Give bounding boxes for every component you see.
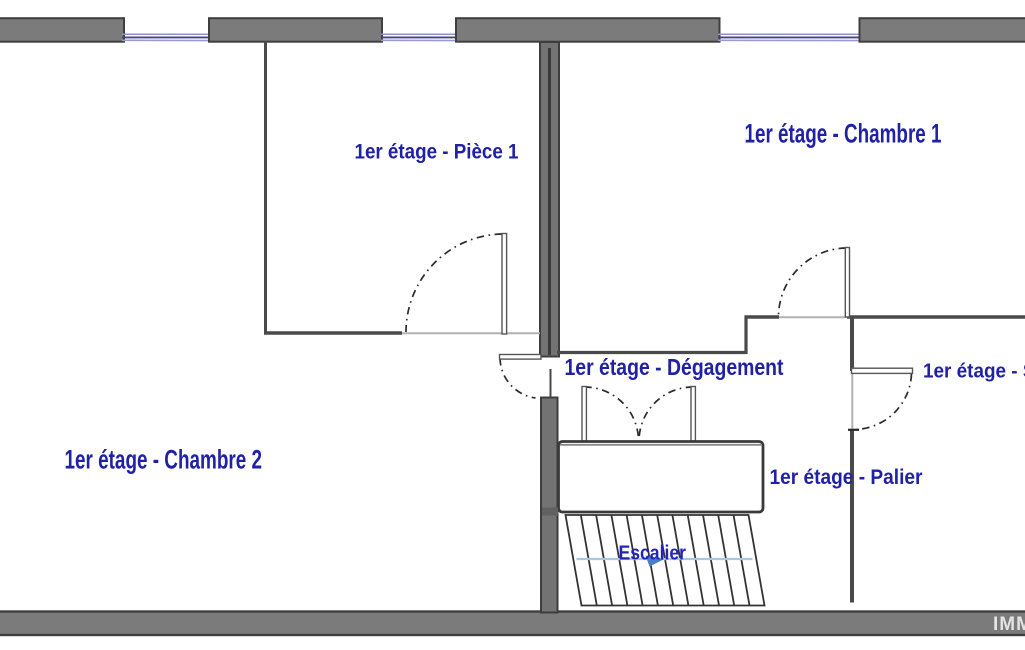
svg-text:1er étage - Chambre 1: 1er étage - Chambre 1 bbox=[745, 119, 942, 149]
svg-text:1er étage - Pièce 1: 1er étage - Pièce 1 bbox=[355, 140, 519, 164]
svg-text:1er étage - Sd: 1er étage - Sd bbox=[923, 361, 1025, 383]
svg-text:1er étage - Palier: 1er étage - Palier bbox=[770, 466, 923, 489]
svg-text:1er étage - Dégagement: 1er étage - Dégagement bbox=[565, 354, 784, 380]
svg-text:Escalier: Escalier bbox=[619, 543, 687, 565]
svg-text:IMMONOT: IMMONOT bbox=[993, 614, 1025, 635]
svg-text:1er étage - Chambre 2: 1er étage - Chambre 2 bbox=[65, 445, 263, 475]
